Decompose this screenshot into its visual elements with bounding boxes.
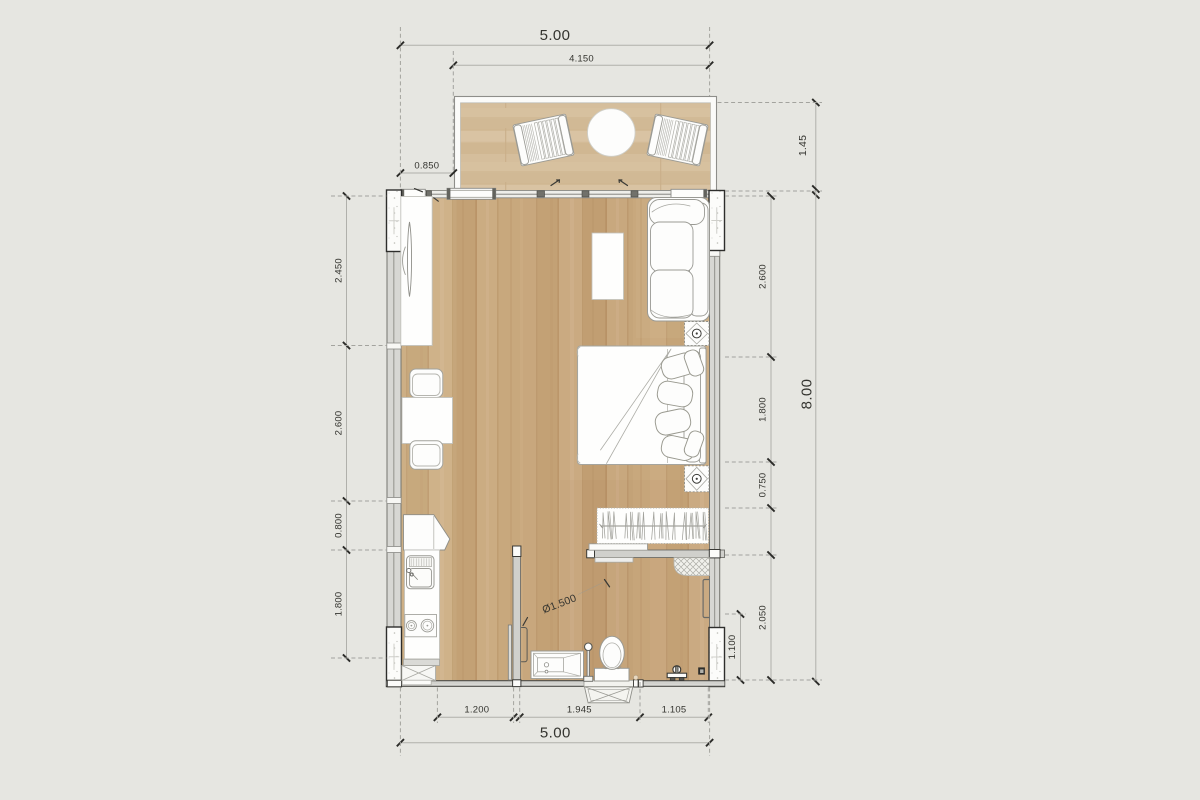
svg-text:5.00: 5.00 [540,725,571,742]
svg-text:2.050: 2.050 [758,605,769,630]
svg-text:2.450: 2.450 [334,258,345,283]
svg-text:0.750: 0.750 [758,473,769,498]
svg-text:1.200: 1.200 [464,704,489,715]
svg-text:1.945: 1.945 [567,704,592,715]
svg-text:1.45: 1.45 [797,135,809,156]
svg-text:0.850: 0.850 [414,160,439,171]
svg-text:0.800: 0.800 [334,513,345,538]
svg-text:1.100: 1.100 [727,635,738,660]
svg-text:1.800: 1.800 [758,397,769,422]
svg-text:4.150: 4.150 [569,53,594,64]
svg-text:5.00: 5.00 [540,27,571,44]
svg-text:1.800: 1.800 [334,592,345,617]
svg-text:2.600: 2.600 [334,411,345,436]
svg-text:1.105: 1.105 [662,704,687,715]
svg-text:8.00: 8.00 [799,379,816,410]
svg-text:2.600: 2.600 [758,264,769,289]
